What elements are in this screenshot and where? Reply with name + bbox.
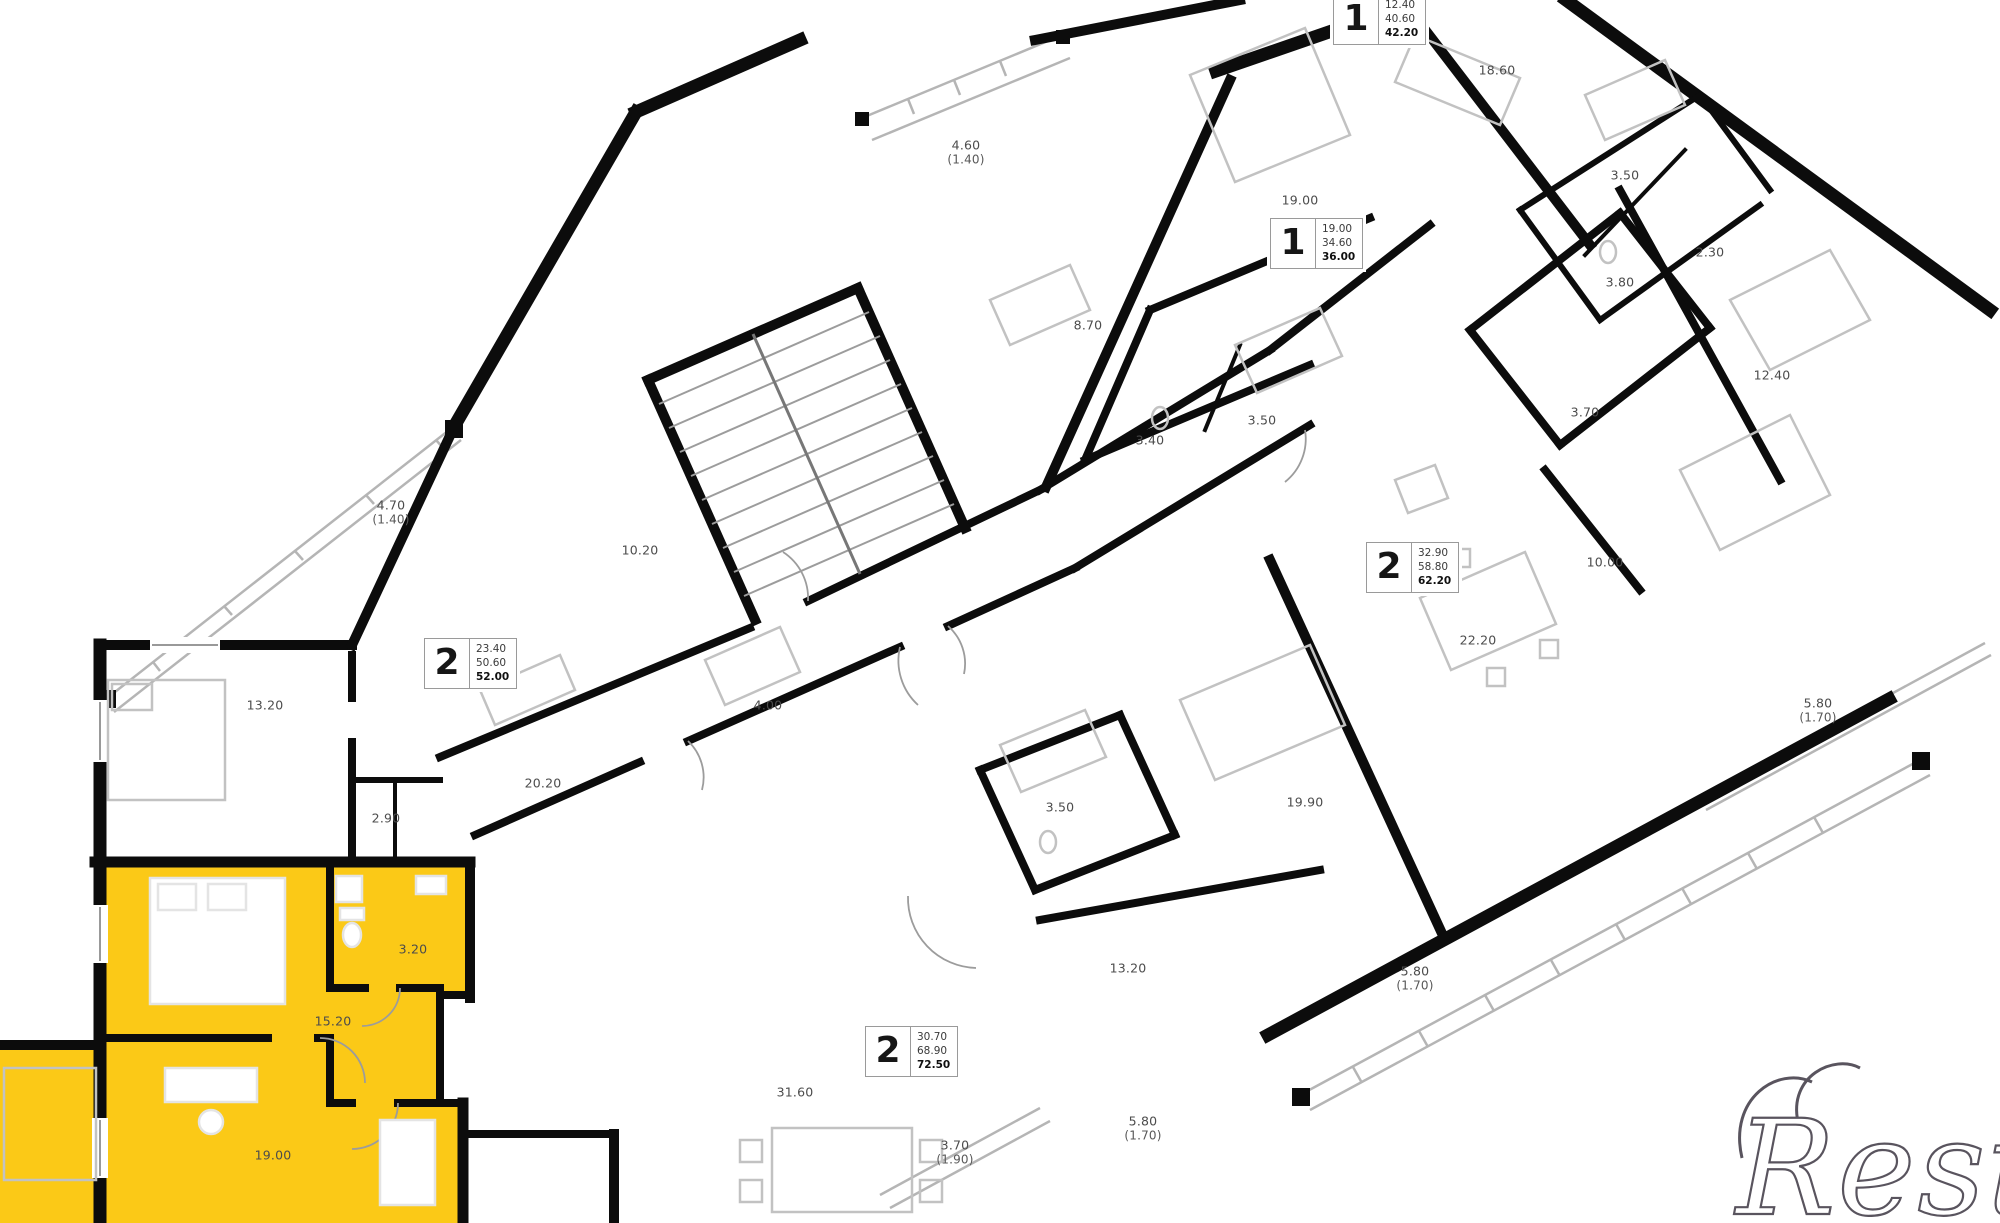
floor-plan-screen: Restate 4.70(1.40)13.2010.204.0020.202.9… bbox=[0, 0, 2000, 1223]
watermark-logo: Restate bbox=[1734, 1064, 2000, 1223]
floor-plan-svg: Restate bbox=[0, 0, 2000, 1223]
watermark-text: Restate bbox=[1734, 1092, 2000, 1223]
